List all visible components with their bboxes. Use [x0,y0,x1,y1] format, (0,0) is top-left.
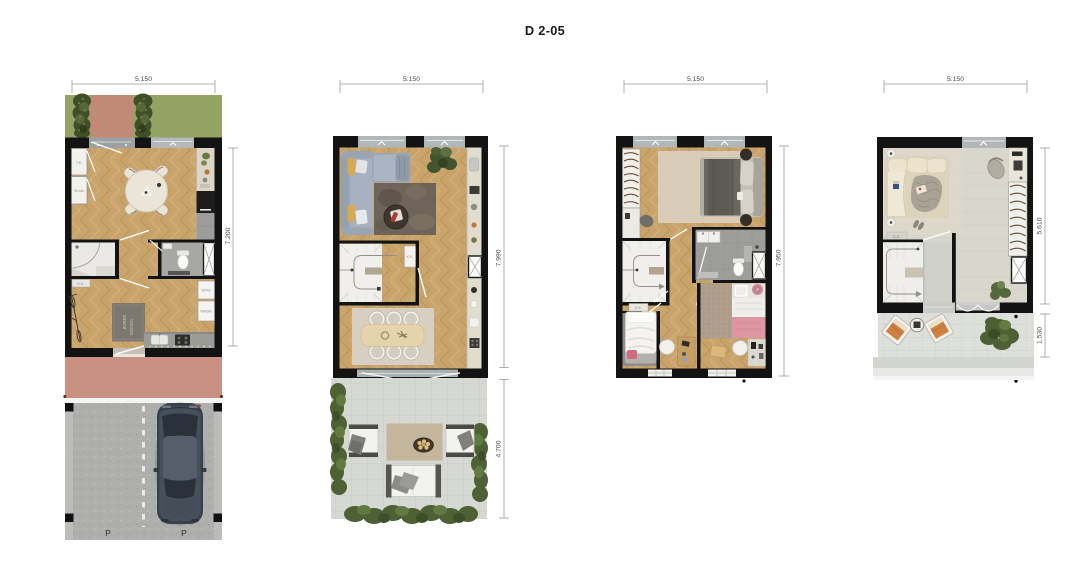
svg-text:WASM: WASM [200,310,211,314]
svg-text:K.K.: K.K. [77,282,84,286]
svg-text:5.150: 5.150 [135,76,152,83]
svg-text:K.K.: K.K. [893,234,901,239]
svg-text:D 2-05: D 2-05 [525,23,565,38]
svg-text:4.700: 4.700 [496,440,503,457]
svg-text:WTW: WTW [202,289,212,293]
svg-text:K.K.: K.K. [635,306,642,310]
svg-text:7.990: 7.990 [496,249,503,266]
svg-text:BOREK: BOREK [122,314,127,329]
svg-text:7.200: 7.200 [225,227,232,244]
svg-text:P: P [105,528,111,538]
svg-text:P: P [181,528,187,538]
svg-text:1.530: 1.530 [1037,327,1044,344]
svg-text:T.K.: T.K. [76,161,82,165]
svg-text:WONEN: WONEN [129,319,134,335]
svg-text:5.150: 5.150 [687,76,704,83]
svg-text:7.950: 7.950 [776,249,783,266]
svg-text:5.150: 5.150 [947,76,964,83]
svg-text:K.K.: K.K. [407,255,414,259]
svg-text:5.610: 5.610 [1037,217,1044,234]
svg-text:5.150: 5.150 [403,76,420,83]
svg-text:W.mb: W.mb [74,189,83,193]
